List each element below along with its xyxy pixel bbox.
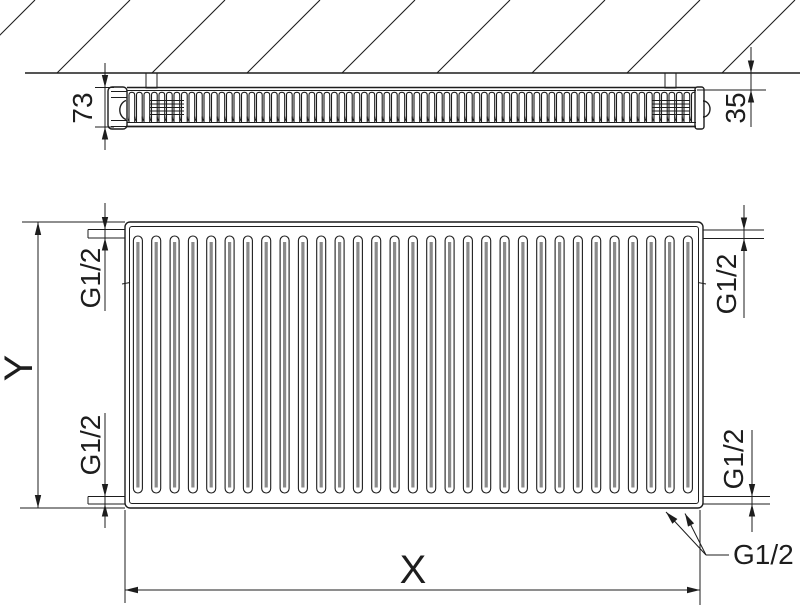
top-view: 73 35 (0, 0, 800, 150)
width-value: X (400, 548, 427, 592)
end-cap-right (695, 87, 710, 129)
dimension-thread-bottom-right: G1/2 (718, 429, 755, 532)
radiator-technical-drawing: 73 35 (0, 0, 800, 611)
hatch-line (342, 0, 415, 73)
dimension-thread-bottom-left: G1/2 (75, 413, 108, 528)
side-tick-right (698, 283, 706, 285)
hatch-line (722, 0, 795, 73)
connection-stub-bottom-left (88, 497, 125, 505)
arrow-up-icon (749, 504, 755, 517)
dimension-depth: 73 (67, 63, 114, 150)
end-cap-left (108, 87, 127, 129)
arrow-down-icon (741, 218, 747, 231)
thread-value: G1/2 (75, 248, 106, 309)
arrow-up-left-icon (685, 514, 694, 527)
corrugations (133, 236, 692, 493)
connection-stub-top-right (703, 230, 764, 239)
front-view: Y X G1/2 G1/2 (0, 203, 794, 605)
arrow-down-icon (748, 61, 754, 74)
arrow-up-icon (35, 222, 41, 235)
dimension-thread-top-right: G1/2 (711, 205, 747, 318)
mounting-bracket-left (146, 73, 157, 88)
arrow-down-icon (102, 217, 108, 230)
dimension-height: Y (0, 222, 125, 508)
arrow-down-icon (102, 484, 108, 497)
connection-stub-bottom-right (703, 497, 770, 505)
hatch-line (152, 0, 225, 73)
wall-hatching (0, 0, 795, 73)
arrow-right-icon (687, 587, 700, 593)
thread-value: G1/2 (75, 415, 106, 476)
arrow-left-icon (125, 587, 138, 593)
side-tick-left (122, 283, 130, 285)
dimension-width: X (125, 510, 700, 605)
mounting-bracket-right (665, 73, 676, 88)
arrow-up-icon (741, 239, 747, 252)
connection-stub-top-left (88, 230, 125, 239)
thread-value: G1/2 (733, 539, 794, 570)
hatch-line (0, 0, 35, 73)
thread-value: G1/2 (718, 429, 749, 490)
thread-value: G1/2 (711, 254, 742, 315)
arrow-down-icon (102, 75, 108, 88)
hatch-line (437, 0, 510, 73)
hatch-line (627, 0, 700, 73)
arrow-up-icon (102, 127, 108, 140)
depth-value: 73 (67, 92, 98, 123)
radiator-top-view-body (108, 87, 710, 129)
convector-corrugation-area (128, 91, 695, 122)
hatch-line (532, 0, 605, 73)
hatch-line (57, 0, 130, 73)
arrow-up-icon (102, 504, 108, 517)
dimension-thread-top-left: G1/2 (75, 203, 108, 311)
hatch-line (247, 0, 320, 73)
wall-distance-value: 35 (720, 92, 751, 123)
thread-leader-bottom-connections: G1/2 (666, 512, 794, 570)
arrow-down-icon (749, 484, 755, 497)
height-value: Y (0, 355, 41, 382)
arrow-down-icon (35, 495, 41, 508)
